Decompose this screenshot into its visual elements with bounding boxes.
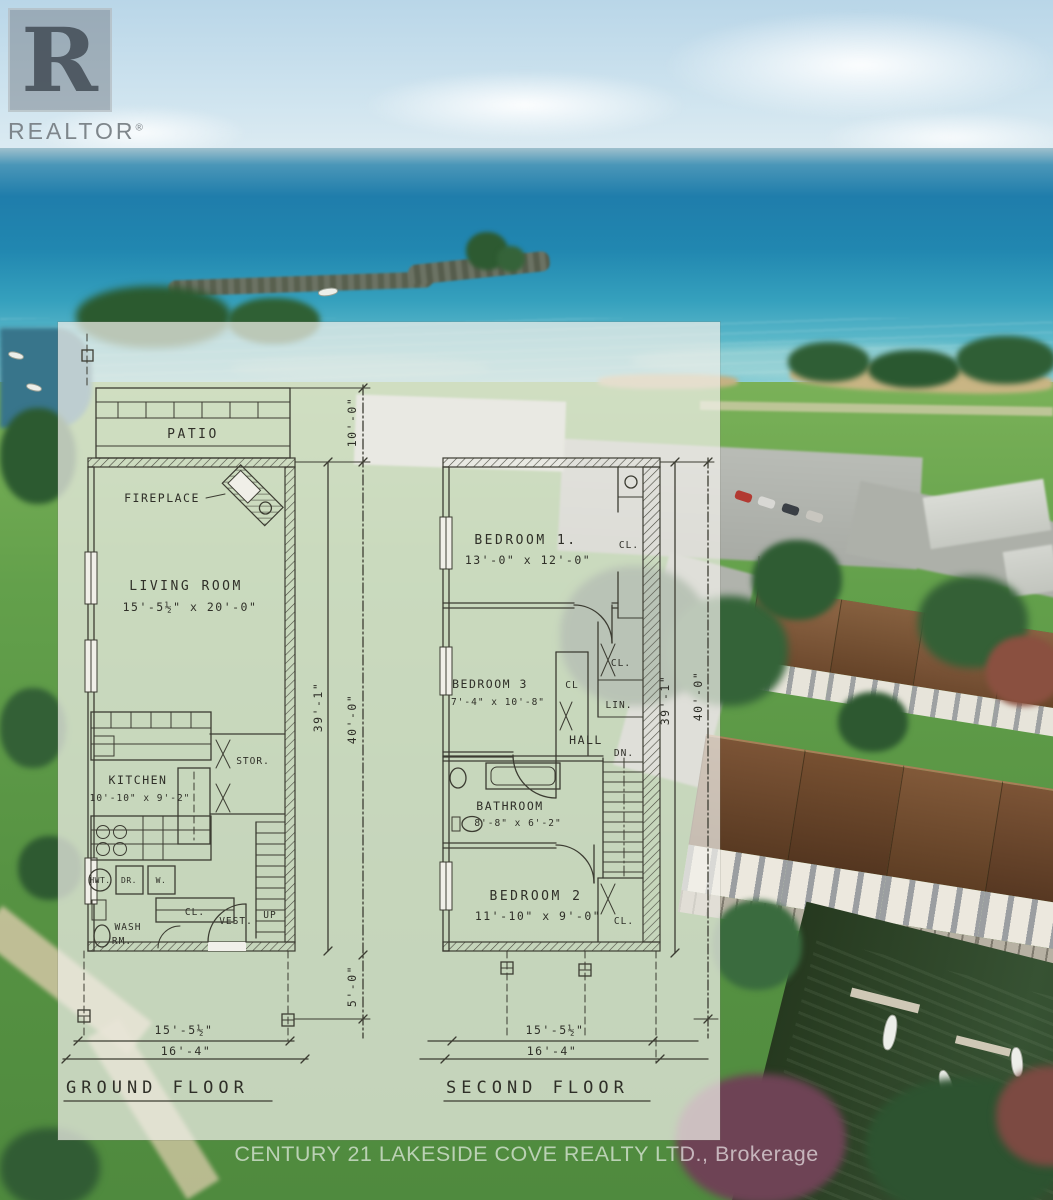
kitchen-label: KITCHEN [109,773,168,787]
floor-plan-drawing: PATIO FIREPLACE LIVING ROOM [58,322,720,1140]
cloud [660,10,1053,120]
gf-porch-depth: 5'-0" [345,965,359,1007]
stairs-up-label: UP [263,910,276,921]
realtor-logo: R REALTOR® [8,8,118,145]
stairs-down-label: DN. [614,748,634,759]
ground-floor-plan: PATIO FIREPLACE LIVING ROOM [62,334,370,1101]
wash-room-label-2: RM. [112,936,132,947]
vestibule-label: VEST. [219,916,253,927]
washer-label: W. [156,876,167,885]
gf-interior-width: 15'-5½" [155,1023,214,1037]
bedroom3-label: BEDROOM 3 [452,677,528,691]
jetty-tree [497,246,525,272]
second-floor-plan: CL. BEDROOM 1. 13'-0" x 12'-0" BEDROOM 3… [420,458,718,1101]
tree [0,688,66,768]
realtor-logo-label: REALTOR® [8,118,118,145]
sf-overall-width: 16'-4" [527,1044,578,1058]
gf-overall-depth: 40'-0" [345,694,359,745]
listing-photo: PATIO FIREPLACE LIVING ROOM [0,0,1053,1200]
tree [752,540,842,620]
shore-tree [788,342,870,382]
dryer-label: DR. [121,876,137,885]
bathroom-label: BATHROOM [476,799,543,813]
bedroom2-label: BEDROOM 2 [490,889,583,904]
floor-plan-overlay: PATIO FIREPLACE LIVING ROOM [58,322,720,1140]
sf-interior-depth: 39'-1" [658,675,672,726]
shore-tree [868,350,960,388]
registered-mark: ® [136,122,146,133]
hall-closet-label: CL. [611,658,631,669]
tree [712,900,802,990]
living-room-size: 15'-5½" x 20'-0" [123,600,258,614]
bedroom3-size: 7'-4" x 10'-8" [451,697,545,708]
hwt-label: HWT. [89,876,110,885]
closet-label: CL. [185,907,205,918]
patio-label: PATIO [167,427,219,442]
hall-label: HALL [569,733,603,747]
realtor-logo-text: REALTOR [8,118,136,144]
gf-interior-depth: 39'-1" [311,682,325,733]
storage-label: STOR. [236,756,270,767]
cloud [360,70,690,140]
sf-interior-width: 15'-5½" [526,1023,585,1037]
realtor-r-letter: R [22,16,99,104]
brokerage-watermark: CENTURY 21 LAKESIDE COVE REALTY LTD., Br… [0,1142,1053,1167]
bedroom2-size: 11'-10" x 9'-0" [475,909,601,923]
bedroom1-label: BEDROOM 1. [474,533,577,548]
kitchen-size: 10'-10" x 9'-2" [90,793,191,804]
sf-overall-depth: 40'-0" [691,671,705,722]
ground-floor-title: GROUND FLOOR [66,1078,249,1098]
bedroom1-closet-label: CL. [619,540,639,551]
gf-patio-depth: 10'-0" [345,397,359,448]
realtor-r-icon: R [8,8,112,112]
shore-tree [956,336,1053,384]
linen-label: LIN. [606,700,633,711]
living-room-label: LIVING ROOM [129,579,243,594]
bedroom3-closet-label: CL [565,680,578,691]
bedroom1-size: 13'-0" x 12'-0" [465,553,591,567]
wash-room-label-1: WASH [115,922,142,933]
second-floor-title: SECOND FLOOR [446,1078,629,1098]
tree-red [986,636,1053,706]
fireplace-label: FIREPLACE [124,491,200,505]
bedroom2-closet-label: CL. [614,916,634,927]
tree [838,692,908,752]
bathroom-size: 8'-8" x 6'-2" [474,818,561,829]
gf-overall-width: 16'-4" [161,1044,212,1058]
